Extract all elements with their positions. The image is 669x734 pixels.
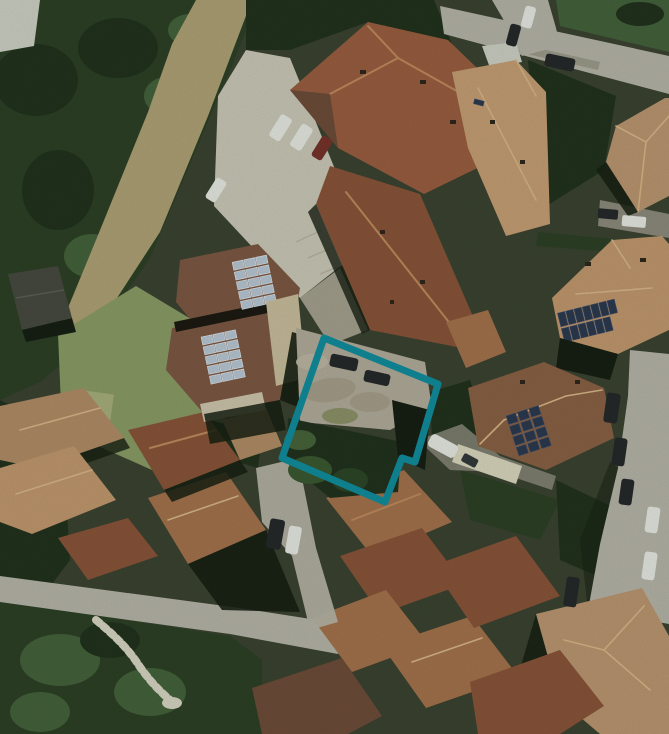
aerial-scene	[0, 0, 669, 734]
satellite-map-view[interactable]	[0, 0, 669, 734]
photo-grain	[0, 0, 669, 734]
